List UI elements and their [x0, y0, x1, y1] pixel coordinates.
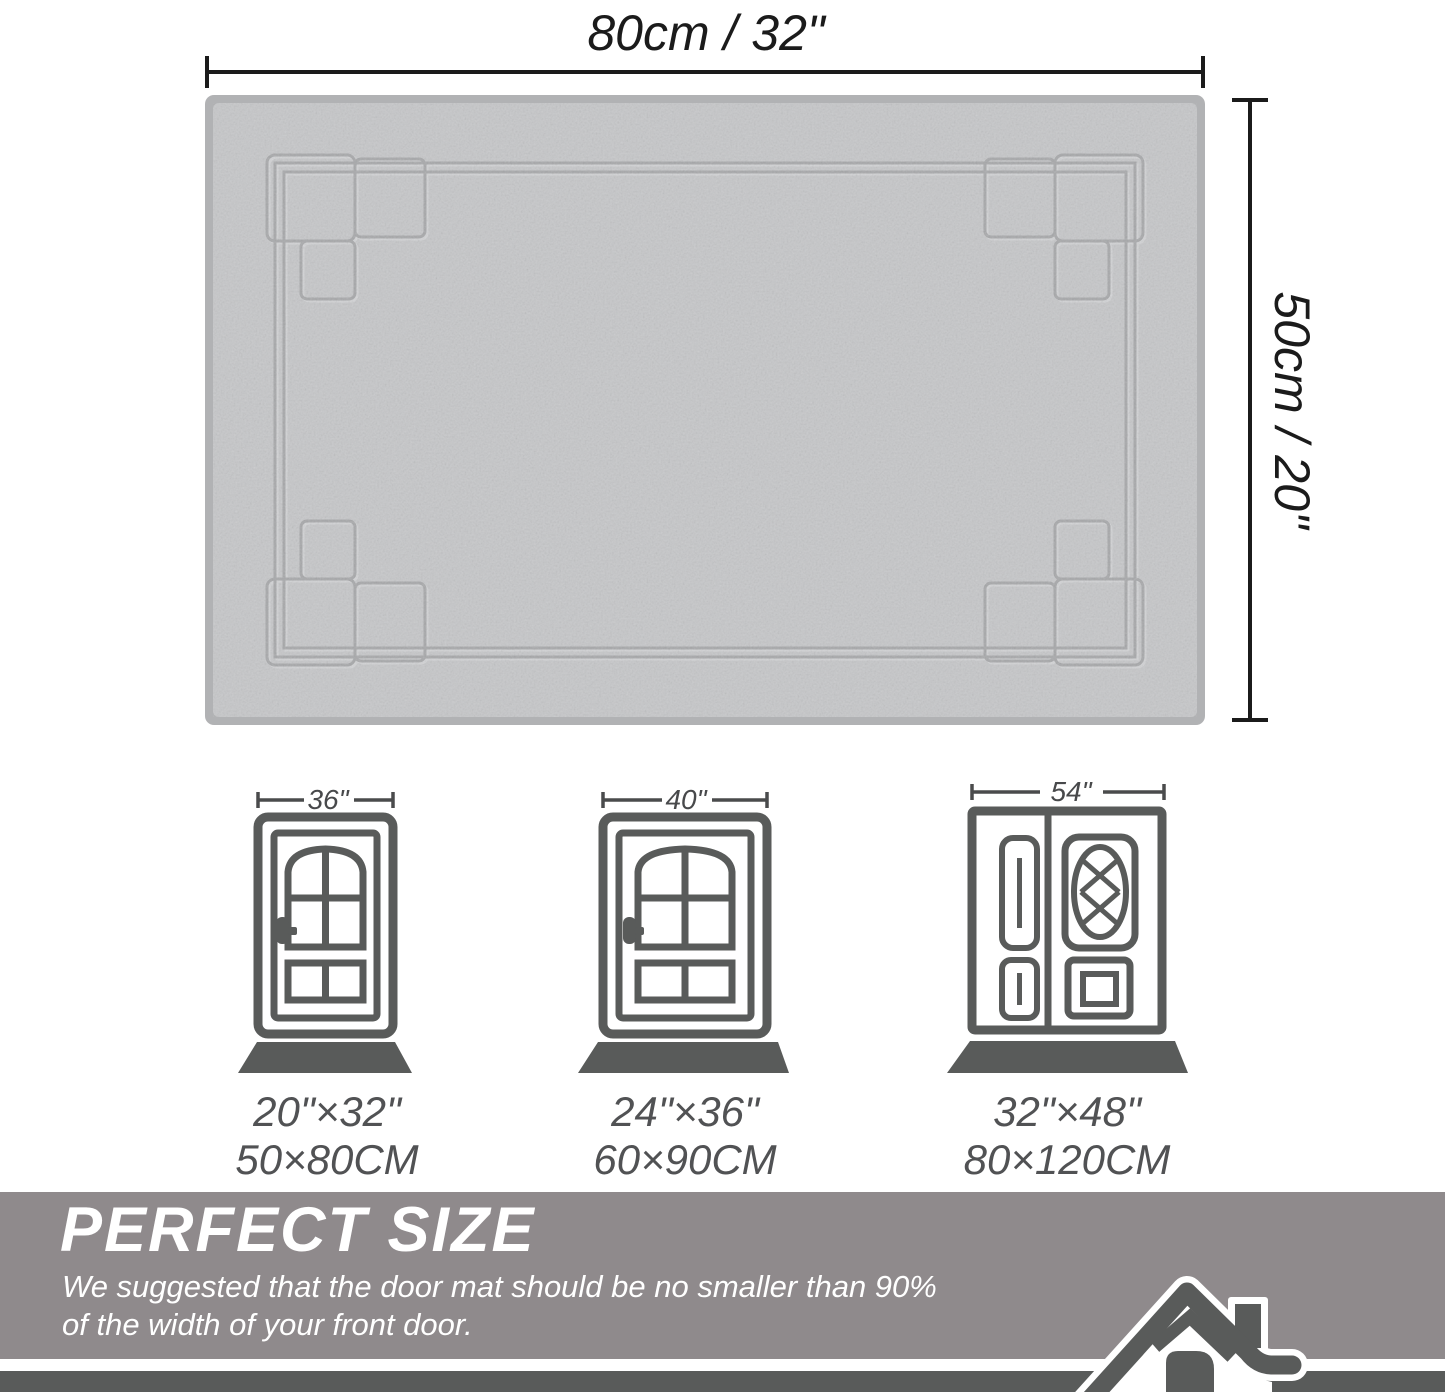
mat-size-option-2: 24"×36" 60×90CM [525, 1088, 845, 1184]
mat-size-cm: 60×90CM [525, 1136, 845, 1184]
house-logo-icon [1085, 1292, 1292, 1392]
door-width-label: 54" [1050, 776, 1092, 807]
mat-size-cm: 50×80CM [167, 1136, 487, 1184]
mat-size-inches: 20"×32" [167, 1088, 487, 1136]
rug-texture [213, 103, 1197, 717]
footer-bar [0, 1255, 1445, 1392]
single-door-40-icon: 40" [570, 770, 790, 1100]
house-door-icon [1166, 1351, 1214, 1392]
mat-size-option-3: 32"×48" 80×120CM [907, 1088, 1227, 1184]
door-mat-image [205, 95, 1205, 725]
door-width-label: 40" [665, 784, 707, 815]
door-mat-shape [238, 1042, 412, 1073]
single-door-36-icon: 36" [220, 770, 440, 1100]
double-door-54-icon: 54" [940, 770, 1220, 1100]
mat-size-cm: 80×120CM [907, 1136, 1227, 1184]
mat-size-inches: 32"×48" [907, 1088, 1227, 1136]
door-mat-shape [578, 1042, 789, 1073]
door-width-label: 36" [307, 784, 349, 815]
door-mat-shape [947, 1041, 1188, 1073]
rug-height-dimension-line [1200, 80, 1320, 760]
mat-size-option-1: 20"×32" 50×80CM [167, 1088, 487, 1184]
mat-size-inches: 24"×36" [525, 1088, 845, 1136]
